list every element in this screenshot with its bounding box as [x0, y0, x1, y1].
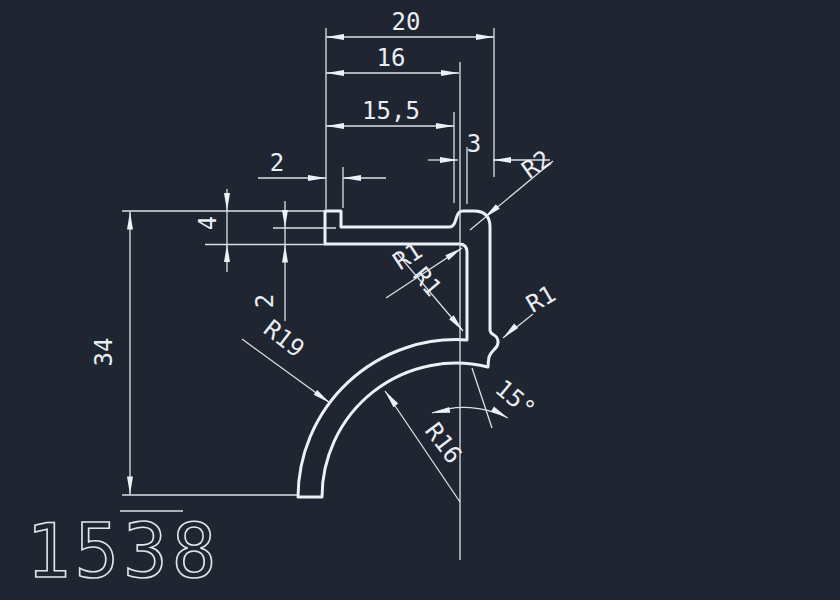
- dim-label-width-to-step: 16: [377, 44, 406, 72]
- arrowhead: [476, 34, 494, 40]
- arrowhead: [326, 70, 344, 76]
- angle-leg-line: [472, 368, 492, 428]
- arrowhead: [436, 123, 454, 129]
- profile-drawing: 20 16 15,5 3 2 4 2 34 R2 R1 R1 R1 R19 R1…: [0, 0, 840, 600]
- extension-lines: [120, 28, 494, 560]
- dim-label-r1-bump: R1: [521, 280, 560, 319]
- arrowhead: [326, 34, 344, 40]
- arrowhead: [308, 175, 326, 181]
- dim-label-overall-width: 20: [392, 8, 421, 36]
- arrowhead: [445, 245, 463, 260]
- dim-label-boss-width: 3: [467, 130, 481, 158]
- dim-label-overall-height: 34: [90, 338, 118, 367]
- arrowhead: [282, 210, 288, 228]
- arrowhead: [493, 157, 511, 163]
- arrowhead: [127, 477, 133, 495]
- dim-label-lip-width: 2: [270, 149, 284, 177]
- dim-label-r2: R2: [517, 145, 557, 185]
- arrowhead: [127, 212, 133, 230]
- arrowhead: [431, 407, 450, 416]
- arrowhead: [440, 157, 458, 163]
- arrowhead: [326, 123, 344, 129]
- dim-label-left-end-height: 4: [194, 216, 222, 230]
- dimension-lines: [130, 37, 550, 495]
- arrowhead: [224, 193, 230, 211]
- cad-drawing-canvas: 20 16 15,5 3 2 4 2 34 R2 R1 R1 R1 R19 R1…: [0, 0, 840, 600]
- dim-label-flange-thickness: 2: [251, 294, 279, 308]
- dim-label-shelf-width: 15,5: [362, 97, 420, 125]
- arrowhead: [441, 70, 459, 76]
- arrowhead: [224, 244, 230, 262]
- arrowhead: [343, 175, 361, 181]
- part-number: 1538: [26, 508, 220, 594]
- arrowhead: [282, 245, 288, 263]
- dim-label-angle: 15°: [490, 374, 541, 423]
